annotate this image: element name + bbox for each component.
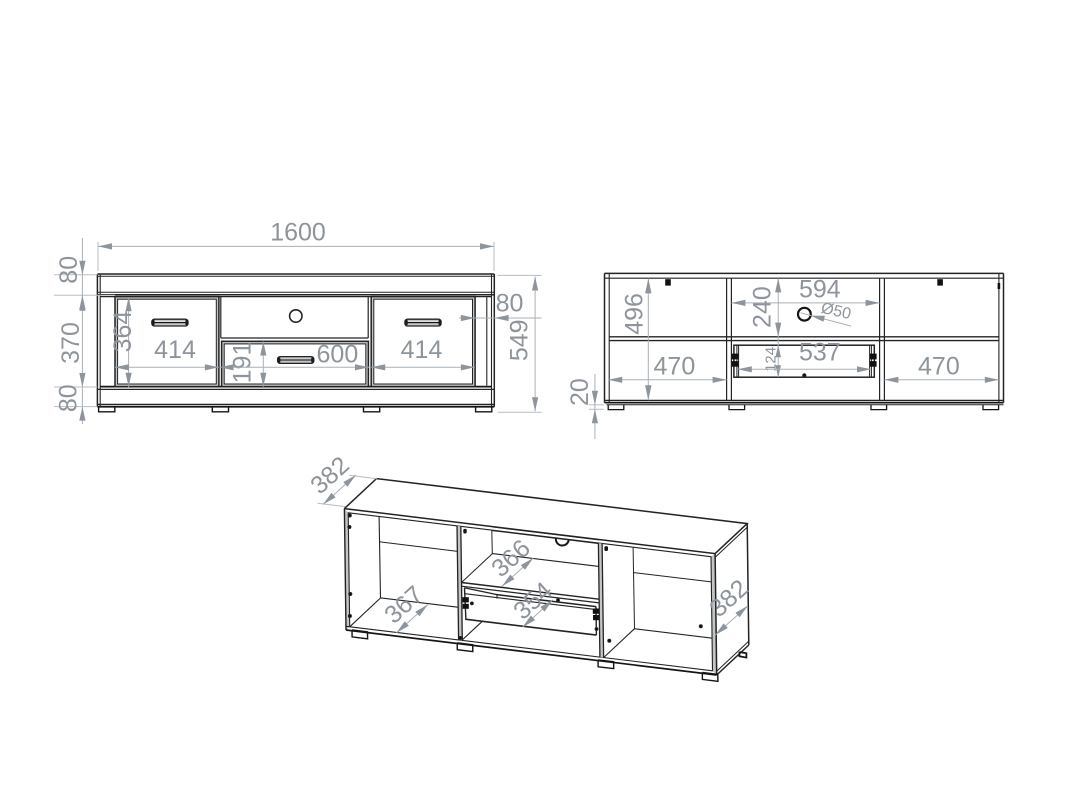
svg-text:1600: 1600 (270, 219, 326, 247)
svg-text:80: 80 (496, 290, 524, 318)
svg-text:191: 191 (228, 342, 256, 384)
svg-text:20: 20 (566, 378, 594, 406)
svg-text:414: 414 (154, 336, 196, 364)
svg-text:600: 600 (317, 340, 359, 368)
svg-text:496: 496 (621, 293, 649, 335)
svg-text:537: 537 (799, 338, 841, 366)
svg-text:124: 124 (762, 347, 779, 372)
svg-text:240: 240 (749, 286, 777, 328)
svg-text:80: 80 (55, 384, 83, 412)
svg-text:594: 594 (799, 275, 841, 303)
svg-text:80: 80 (55, 256, 83, 284)
svg-text:470: 470 (654, 353, 696, 381)
svg-text:364: 364 (109, 311, 137, 353)
svg-text:370: 370 (57, 322, 85, 364)
svg-text:414: 414 (401, 336, 443, 364)
svg-text:549: 549 (506, 319, 534, 361)
svg-text:470: 470 (918, 353, 960, 381)
